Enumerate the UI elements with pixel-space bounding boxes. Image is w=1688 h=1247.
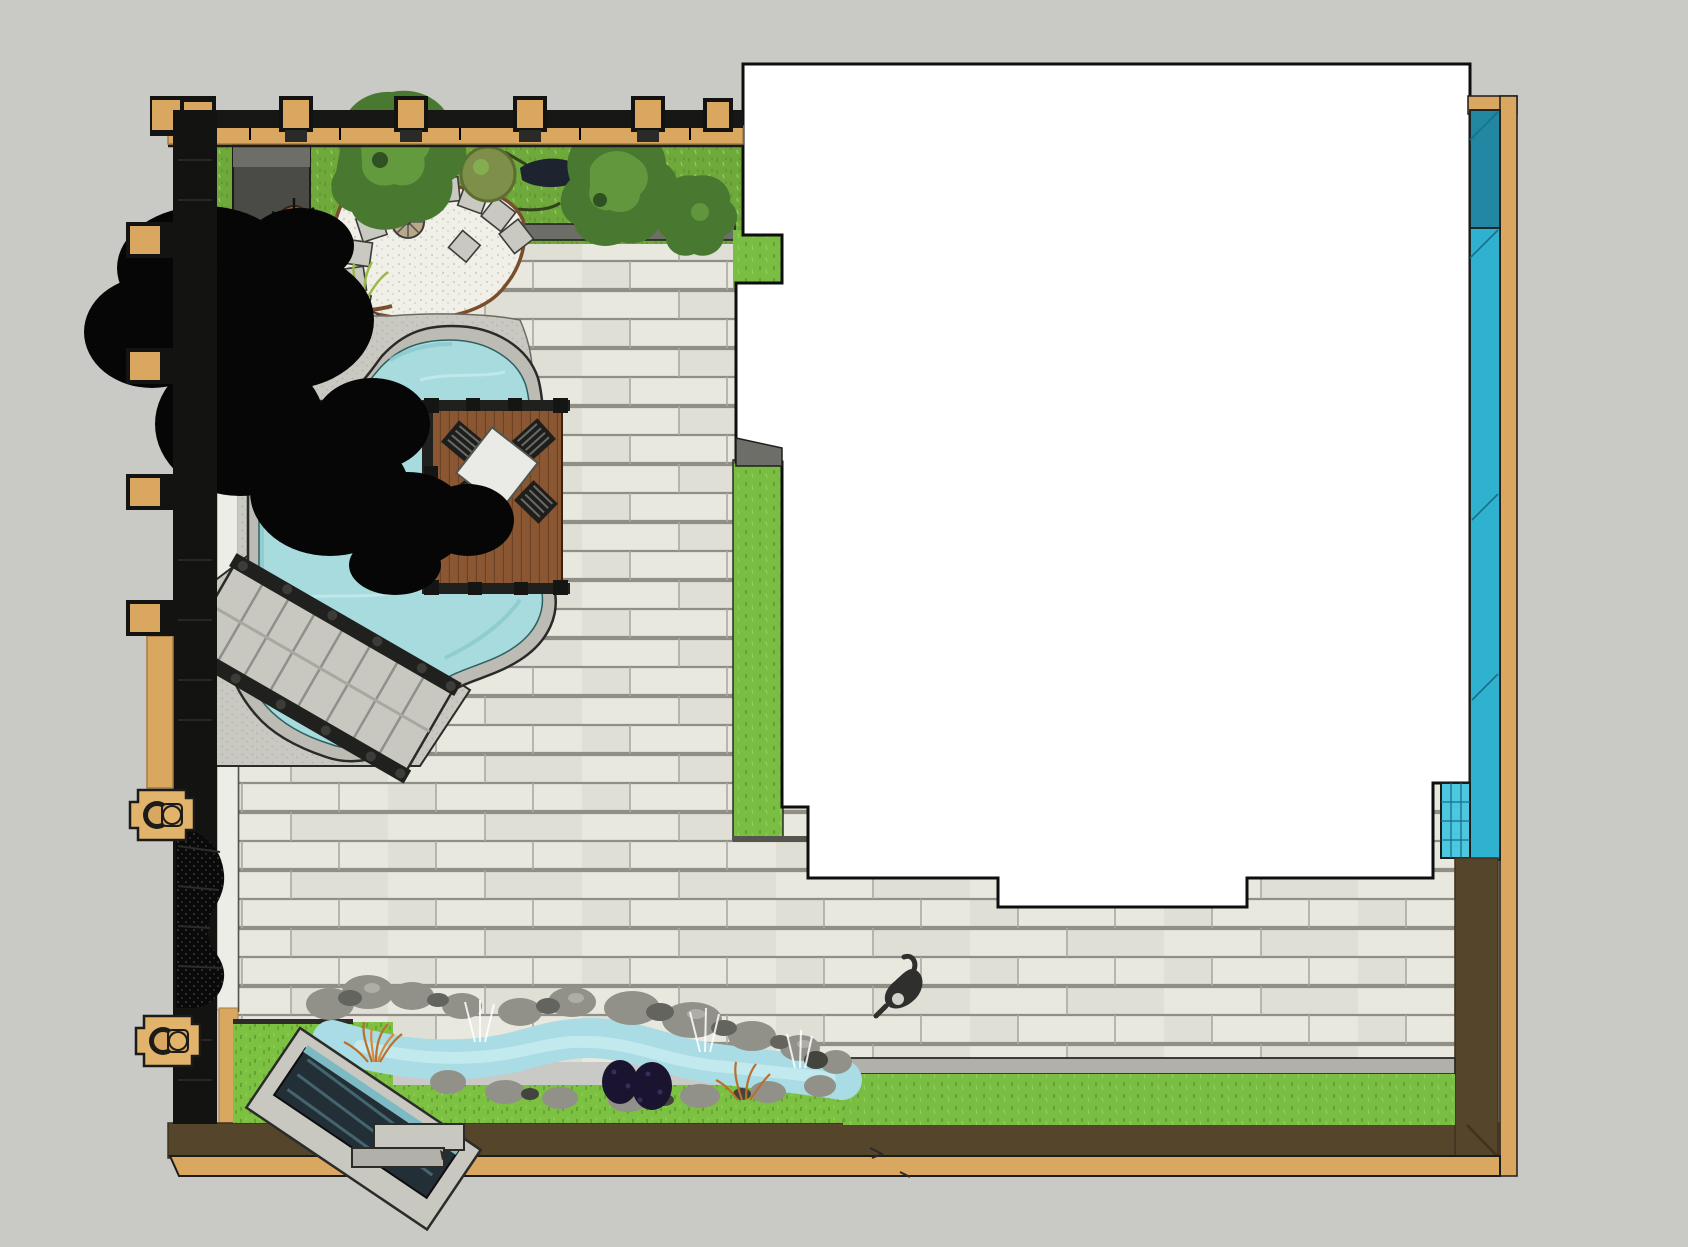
landscape-plan-rendering <box>0 0 1688 1247</box>
fence-left-timber <box>147 636 173 788</box>
hose-bib-box-2 <box>136 1016 200 1066</box>
round-shrub <box>461 147 515 201</box>
house-side-lawn-b <box>733 460 783 840</box>
house-side-lawn-edge <box>733 836 809 842</box>
spillway-step-2 <box>352 1148 444 1167</box>
right-lawn-strip <box>843 1058 1455 1125</box>
right-timber-border <box>1500 96 1517 1176</box>
spillway-step-1 <box>374 1124 464 1150</box>
house-footprint <box>733 64 1470 907</box>
water-wall-upper <box>1470 110 1500 230</box>
water-wall-main <box>1470 228 1500 860</box>
hose-bib-box-1 <box>130 790 194 840</box>
deck-rail-top <box>422 400 570 411</box>
house-side-lawn-a <box>733 230 783 288</box>
spa-tile-block <box>1441 783 1470 858</box>
soil-bed-column <box>1455 858 1498 1158</box>
deck-rail-bottom <box>422 583 570 594</box>
